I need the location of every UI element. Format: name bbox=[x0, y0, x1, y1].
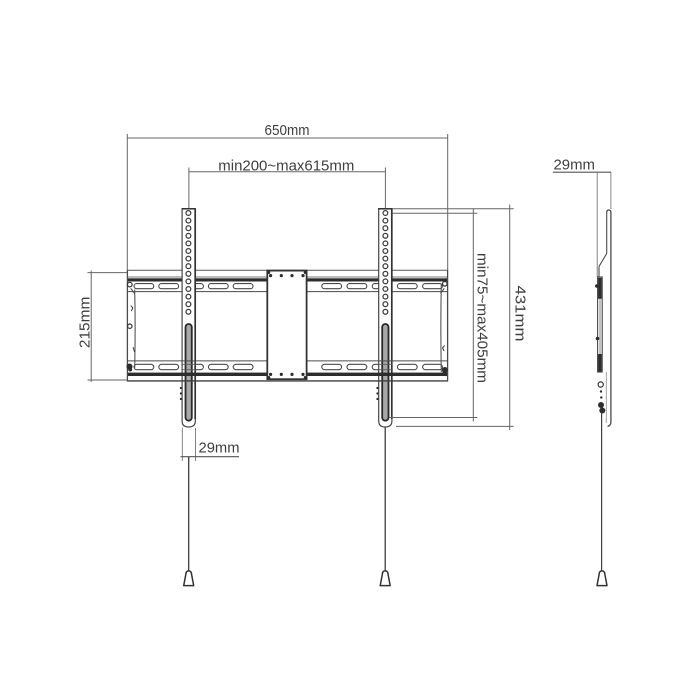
svg-text:431mm: 431mm bbox=[511, 286, 528, 342]
svg-text:min75~max405mm: min75~max405mm bbox=[474, 253, 491, 383]
svg-text:215mm: 215mm bbox=[76, 297, 93, 349]
svg-text:29mm: 29mm bbox=[199, 440, 240, 457]
svg-text:650mm: 650mm bbox=[265, 122, 310, 139]
svg-text:29mm: 29mm bbox=[554, 156, 596, 173]
svg-text:min200~max615mm: min200~max615mm bbox=[218, 158, 354, 175]
